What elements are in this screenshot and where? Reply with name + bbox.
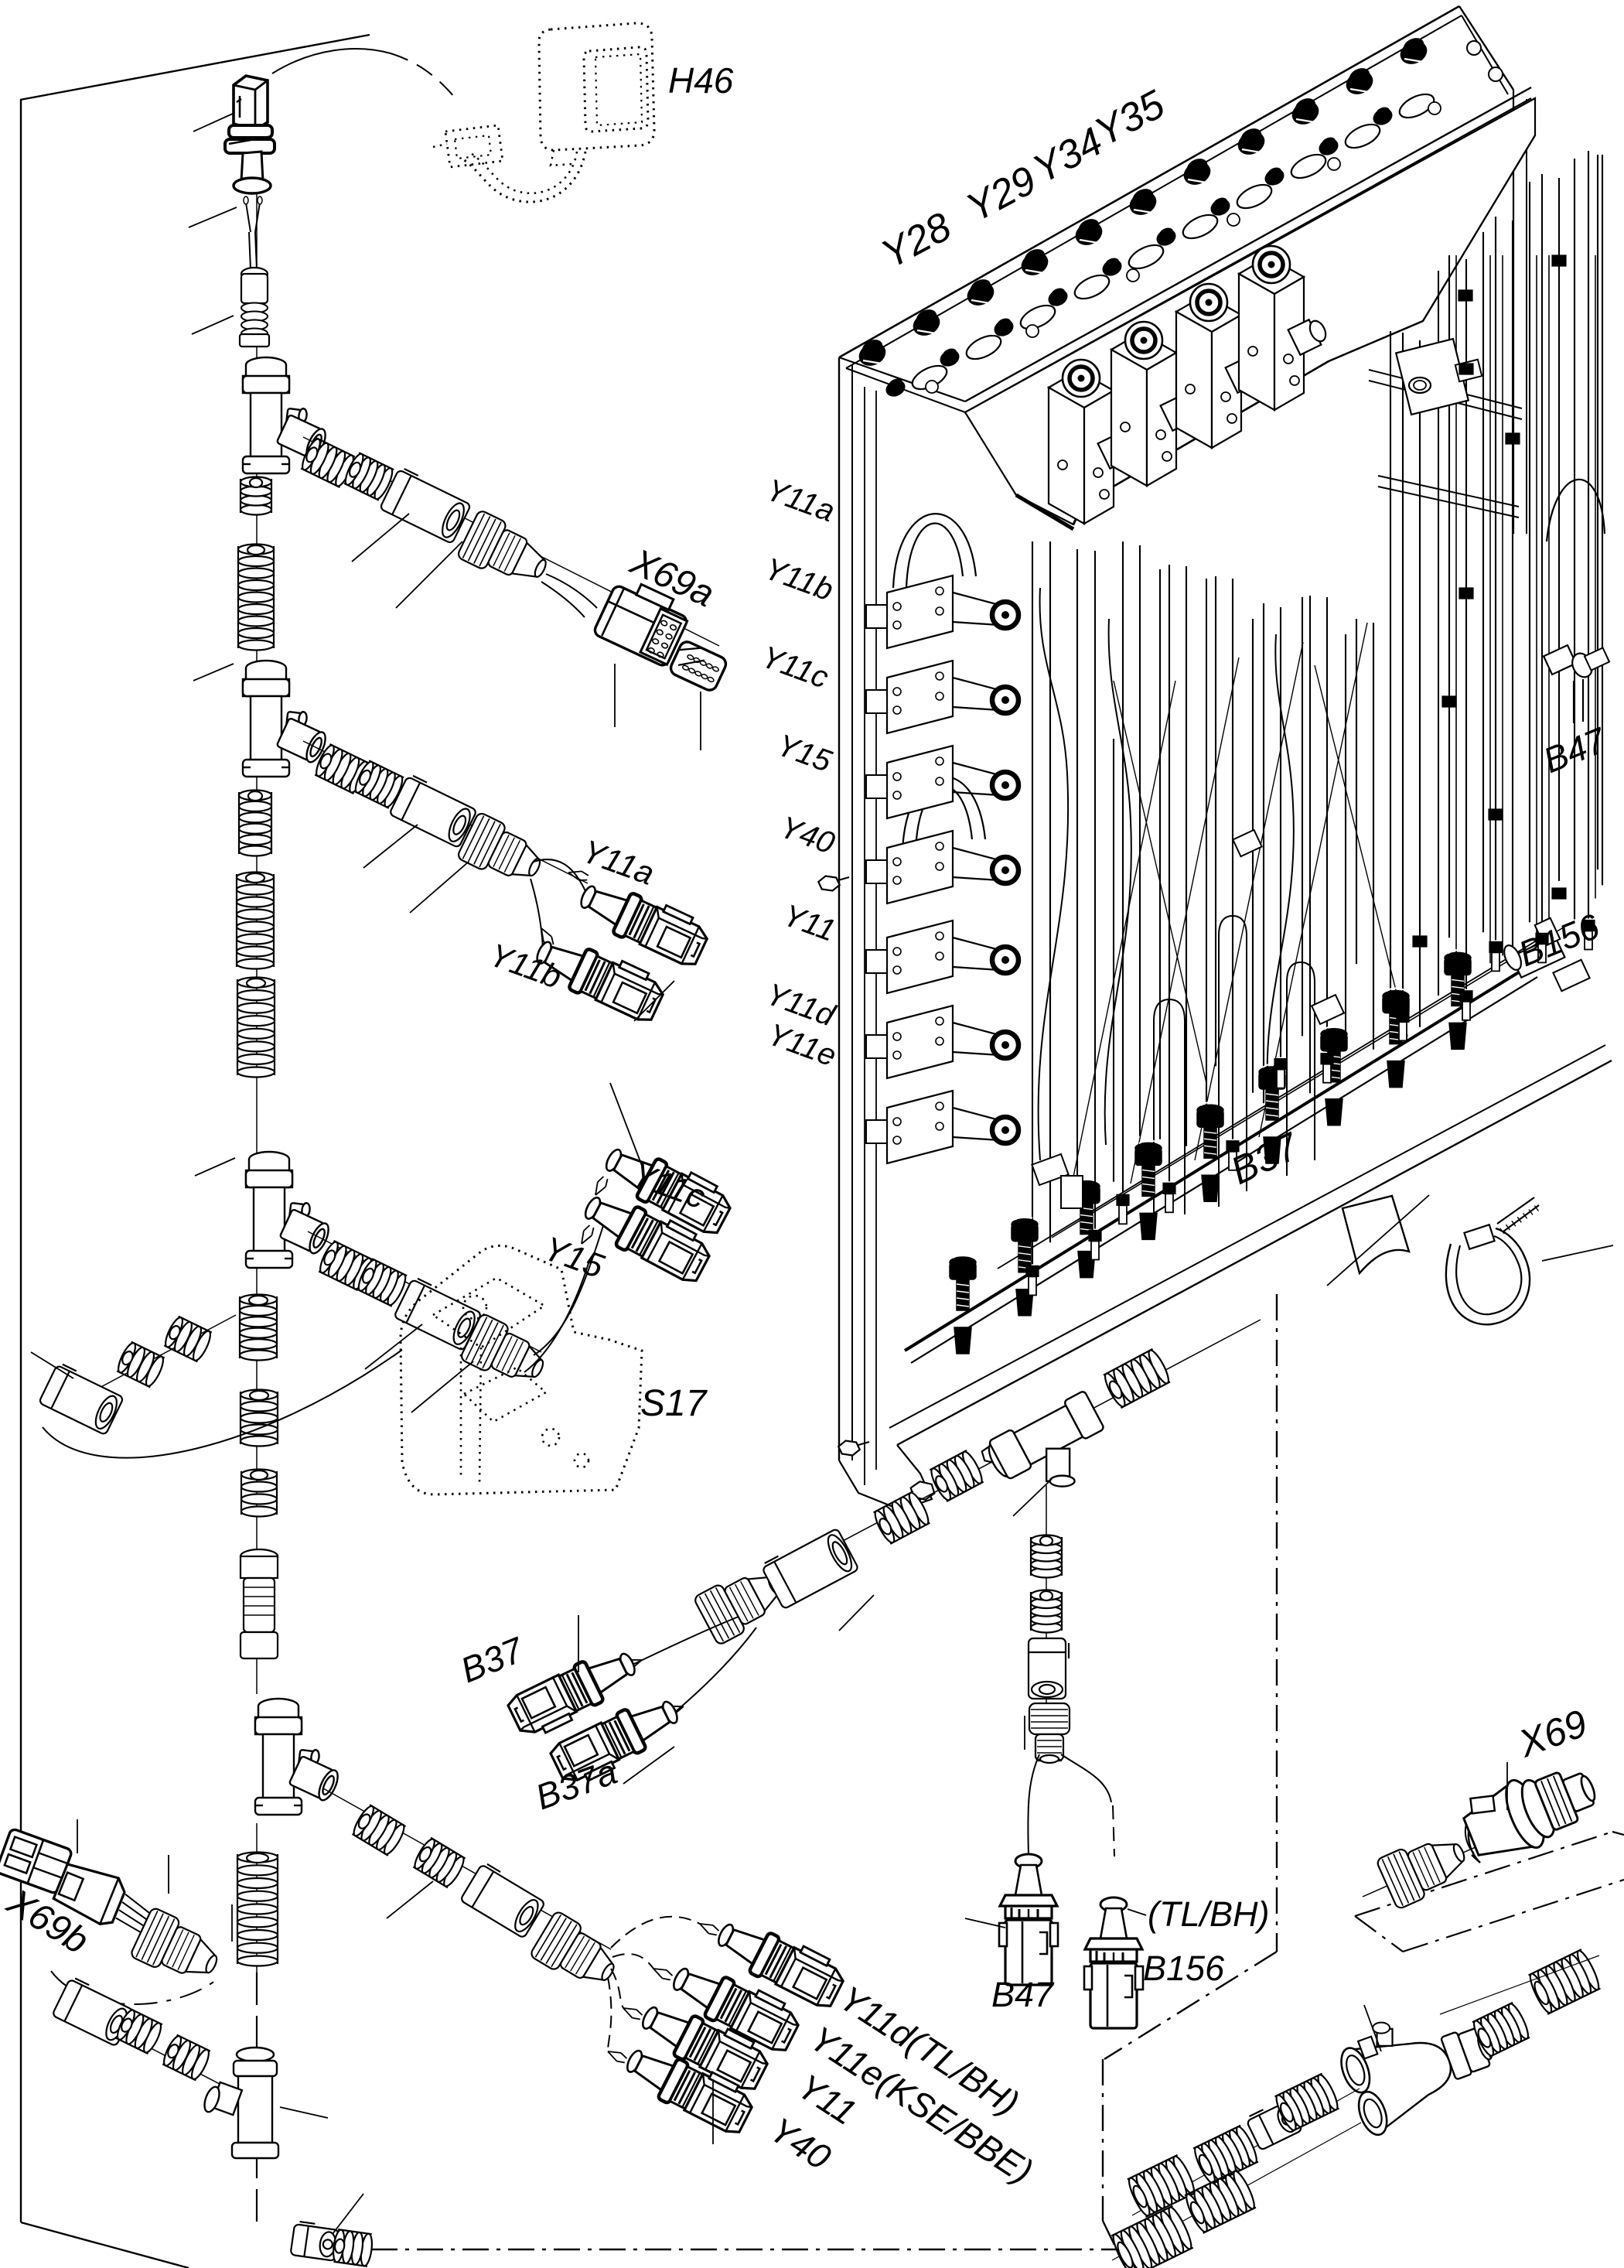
svg-text:S17: S17 <box>640 1383 708 1424</box>
svg-text:H46: H46 <box>668 60 734 101</box>
svg-text:B156: B156 <box>1143 1949 1225 1988</box>
svg-text:B47: B47 <box>991 1975 1055 2014</box>
svg-text:(TL/BH): (TL/BH) <box>1148 1894 1270 1934</box>
